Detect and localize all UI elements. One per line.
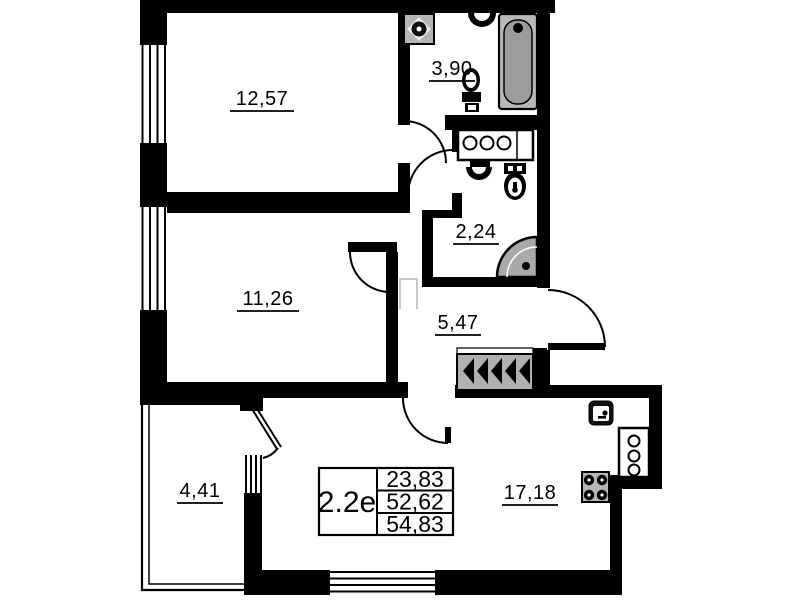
wardrobe-icon [457,348,533,390]
wall-wc-left [422,210,433,287]
wall-bottom-a [262,570,330,595]
vanity-counter-icon [458,130,533,160]
kitchen-unit-icon [619,428,649,477]
wall-right-upper [537,0,550,288]
door-leaf-living [445,427,451,443]
wall-balcony-top [140,390,263,405]
shower-icon [497,237,537,277]
doors [252,121,605,458]
wall-bedroommid-right [386,252,398,382]
kitchen-sink-icon [589,401,613,425]
wall-left-a [140,0,167,45]
bathroom-sink-icon [468,13,496,27]
door-leaf-bedroom-middle [348,242,397,252]
balcony-door [252,407,281,458]
door-arc-bedroom-middle [350,252,390,292]
hall-cabinet-outline [400,279,417,309]
window-left-upper [143,45,166,143]
wall-top [140,0,555,13]
room-label-bedroom-top: 12,57 [236,88,289,110]
room-label-balcony: 4,41 [180,480,221,502]
room-label-wc: 2,24 [456,221,497,243]
wall-bottom-b [435,570,622,595]
room-label-hallway: 5,47 [438,312,479,334]
door-arc-bedroom-top [404,121,446,163]
room-label-kitchen-living: 17,18 [504,482,557,504]
wall-niche-right [649,385,662,489]
room-label-bathroom: 3,90 [432,58,473,80]
window-left-lower [143,207,166,310]
floor-plan-svg: 12,57 3,90 11,26 2,24 5,47 4,41 17,18 2.… [0,0,799,600]
fixtures [400,13,649,502]
door-arc-entrance [548,290,605,347]
bathtub-icon [499,14,537,109]
stove-icon [582,472,609,502]
toilet-wc-icon [504,163,526,200]
unit-info-table: 2.2e 23,83 52,62 54,83 [318,466,453,537]
wall-between-bedrooms [167,192,410,213]
wardrobe-side-bar [533,348,547,390]
wall-left-b [140,143,167,207]
unit-type-label: 2.2e [318,486,376,519]
window-balcony-divider [246,455,261,493]
wall-balcony-divider [244,493,262,595]
pedestal-sink-icon [466,161,492,180]
window-bottom [330,572,435,592]
wall-balcony-top-stub [240,405,263,411]
washing-machine-icon [404,14,434,44]
floor-plan: 12,57 3,90 11,26 2,24 5,47 4,41 17,18 2.… [0,0,799,600]
door-arc-living [403,398,448,443]
room-label-bedroom-middle: 11,26 [242,288,293,310]
wall-wc-bottom [422,277,537,287]
entrance-door-leaf [548,343,605,350]
area-total-value: 54,83 [386,511,444,537]
